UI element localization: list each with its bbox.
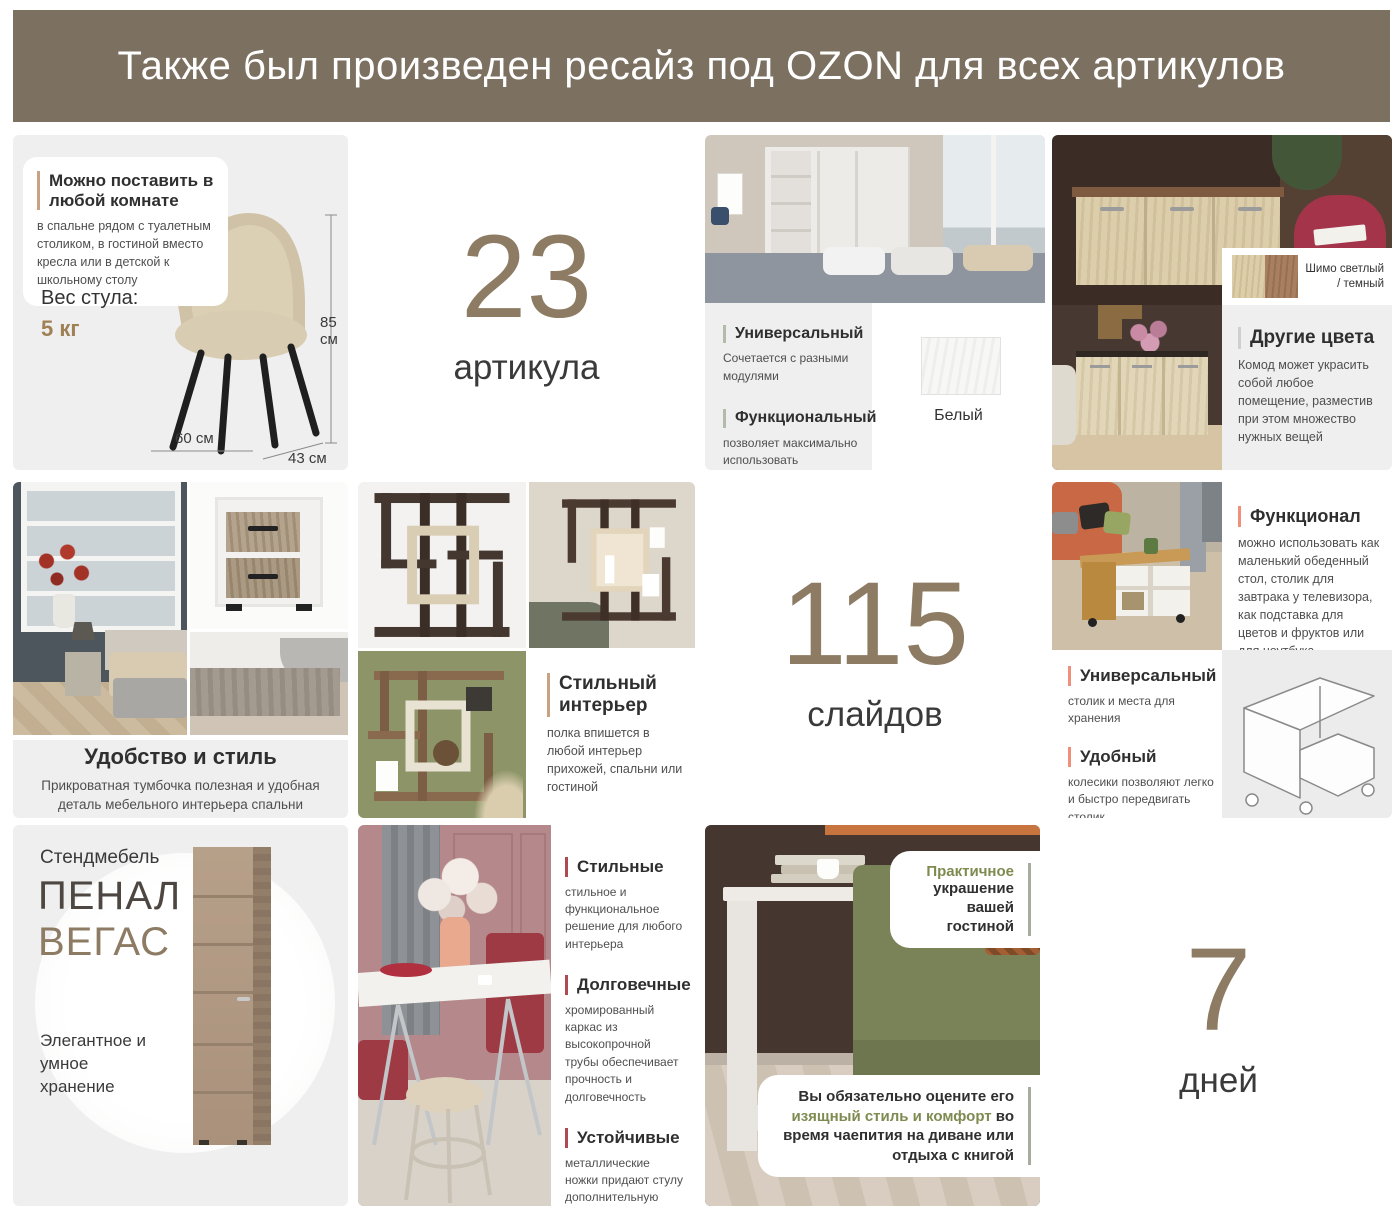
plant-pot: [1144, 538, 1158, 554]
stat-articles-label: артикула: [453, 348, 599, 388]
accent-bar: [1238, 506, 1241, 527]
dried-plant: [468, 761, 523, 818]
height-unit-label: см: [320, 331, 338, 348]
stat-articles: 23 артикула: [348, 135, 705, 470]
pillow: [823, 247, 885, 275]
white-swatch-label: Белый: [872, 407, 1045, 425]
shelf-board: [662, 557, 670, 620]
caster-wheel: [1088, 618, 1097, 627]
stat-days-label: дней: [1179, 1061, 1258, 1101]
wardrobe-card: Универсальный Сочетается с разными модул…: [705, 135, 1045, 470]
accent-bar: [565, 975, 568, 995]
coffee-cup: [478, 975, 492, 985]
feature-head: Стильный интерьер: [547, 673, 683, 717]
decor-vase: [605, 555, 614, 583]
cabinet-foot: [237, 1140, 247, 1145]
decor-books: [642, 574, 659, 596]
nightstand-caption: Удобство и стиль Прикроватная тумбочка п…: [13, 740, 348, 818]
feature-title: Другие цвета: [1250, 327, 1374, 349]
cup: [817, 859, 839, 879]
feature-title: Универсальный: [735, 325, 863, 343]
shelf-board: [562, 612, 676, 620]
coffee-table-drawing-panel: [1222, 650, 1392, 818]
shelf-board: [381, 493, 391, 568]
feature-head: Можно поставить в любой комнате: [37, 171, 214, 210]
stool-leg: [448, 1109, 450, 1203]
sideboard-handle: [1132, 365, 1152, 368]
table-leg: [508, 999, 540, 1135]
dark-shelf: [358, 482, 526, 648]
nightstand-product-photo: [190, 482, 348, 629]
feature: Стильный интерьер полка впишется в любой…: [547, 673, 683, 796]
cabinet-handle: [237, 997, 250, 1001]
accent-bar: [1068, 747, 1071, 767]
cabinet-front: [193, 847, 253, 1145]
feature-body: металлические ножки придают стулу дополн…: [565, 1155, 685, 1206]
feature: Универсальный столик и места для хранени…: [1068, 666, 1220, 727]
chair-feature-panel: Можно поставить в любой комнате в спальн…: [23, 157, 228, 306]
header-banner: Также был произведен ресайз под OZON для…: [13, 10, 1390, 122]
product-title: ПЕНАЛ ВЕГАС: [38, 873, 181, 965]
feature-head: Устойчивые: [565, 1128, 685, 1148]
shelf-board: [380, 671, 389, 739]
shelf-board: [374, 493, 509, 503]
dresser-card: Шимо светлый / темный Другие цвета Комод…: [1052, 135, 1392, 470]
feature-title: Можно поставить в любой комнате: [49, 171, 214, 210]
decor-books: [376, 761, 398, 791]
feature-head: Другие цвета: [1238, 327, 1380, 349]
cabinet-seam: [193, 991, 253, 994]
coffee-table-photo: [1052, 482, 1222, 650]
feature-body: хромированный каркас из высокопрочной тр…: [565, 1002, 685, 1106]
feature-body: в спальне рядом с туалетным столиком, в …: [37, 217, 214, 290]
shelf-card: Стильный интерьер полка впишется в любой…: [358, 482, 695, 818]
drawing-wheel: [1300, 802, 1312, 814]
sideboard-close: [1076, 357, 1208, 435]
page-title: Также был произведен ресайз под OZON для…: [118, 44, 1286, 89]
shelf-board: [568, 499, 576, 562]
wall-block: [1202, 482, 1222, 542]
feature: Функционал можно использовать как малень…: [1238, 506, 1384, 661]
white-chair: [1052, 365, 1076, 445]
penal-card: Стендмебель ПЕНАЛ ВЕГАС Элегантное и умн…: [13, 825, 348, 1206]
feature: Функциональный позволяет максимально исп…: [723, 409, 858, 470]
table-divider: [1148, 566, 1153, 616]
feature-title: Функциональный: [735, 409, 876, 427]
drawing-wheel: [1246, 794, 1258, 806]
bed-blanket: [113, 678, 187, 718]
dark-shelf-styled: [549, 490, 689, 630]
coffee-table-feature-1: Функционал можно использовать как малень…: [1238, 506, 1384, 661]
sideboard-seam: [1162, 357, 1165, 435]
feature-title: Удобный: [1080, 747, 1156, 767]
feature-body: Комод может украсить собой любое помещен…: [1238, 356, 1380, 447]
pillow: [891, 247, 953, 275]
callout-accent-bar: [1028, 863, 1031, 936]
basket: [1122, 592, 1144, 610]
feature-head: Функциональный: [723, 409, 858, 427]
feature: Долговечные хромированный каркас из высо…: [565, 975, 685, 1106]
feature-title: Устойчивые: [577, 1128, 680, 1148]
green-pillow: [1103, 511, 1131, 536]
feature-title: Стильный интерьер: [559, 673, 683, 717]
nightstand-in-room: [65, 652, 101, 696]
stat-slides-value: 115: [781, 565, 969, 683]
sofa-card: Практичное украшение вашей гостиной Вы о…: [705, 825, 1040, 1206]
callout-top: Практичное украшение вашей гостиной: [890, 851, 1040, 948]
feature-title: Универсальный: [1080, 666, 1216, 686]
feature: Устойчивые металлические ножки придают с…: [565, 1128, 685, 1206]
feature-body: столик и места для хранения: [1068, 693, 1220, 728]
table-side: [1082, 562, 1116, 620]
shelf-board: [493, 562, 503, 637]
lamp-shade: [71, 622, 95, 640]
sideboard-handle: [1170, 207, 1194, 211]
feature-body: можно использовать как маленький обеденн…: [1238, 534, 1384, 661]
bed-corner-photo: [190, 632, 348, 735]
callout-top-text: украшение вашей гостиной: [933, 880, 1014, 935]
dining-photo: [358, 825, 551, 1206]
nightstand-foot: [226, 604, 242, 611]
decor-clock: [433, 740, 459, 766]
accent-bar: [1238, 327, 1241, 349]
cabinet-foot: [199, 1140, 209, 1145]
vase: [53, 594, 75, 628]
shelf-board: [456, 493, 466, 637]
cabinet-illustration: [193, 847, 271, 1145]
accent-bar: [565, 1128, 568, 1148]
red-plate: [380, 963, 432, 977]
shelf-product-photo: [358, 482, 526, 648]
sideboard-seam: [1212, 197, 1215, 285]
dining-card: Стильные стильное и функциональное решен…: [358, 825, 695, 1206]
chair-leg: [291, 347, 316, 433]
shimo-swatch-panel: Шимо светлый / темный: [1222, 248, 1392, 305]
sideboard-handle: [1090, 365, 1110, 368]
feature-title: Стильные: [577, 857, 664, 877]
gray-pillow: [1052, 512, 1078, 534]
drawer-handle: [248, 574, 278, 579]
shelf-interior-photo: [529, 482, 695, 648]
feature-title: Долговечные: [577, 975, 691, 995]
sideboard-seam: [1144, 197, 1147, 285]
product-title-line2: ВЕГАС: [38, 919, 181, 965]
decor-books: [466, 687, 492, 711]
caster-wheel: [1176, 614, 1185, 623]
sideboard-seam: [1118, 357, 1121, 435]
sideboard-handle: [1178, 365, 1198, 368]
cabinet-seam: [193, 1091, 253, 1094]
product-title-line1: ПЕНАЛ: [38, 873, 181, 919]
shimo-light-half: [1232, 255, 1265, 298]
feature-head: Универсальный: [1068, 666, 1220, 686]
drawer-handle: [248, 526, 278, 531]
bedroom-wardrobe-photo: [705, 135, 1045, 303]
orange-wall-strip: [825, 825, 1040, 835]
feature: Другие цвета Комод может украсить собой …: [1238, 327, 1380, 446]
feature-body: Сочетается с разными модулями: [723, 350, 858, 385]
shelf-board: [374, 671, 504, 680]
callout-bottom-part1: Вы обязательно оцените его: [798, 1088, 1014, 1105]
coffee-table-feature-2: Универсальный столик и места для хранени…: [1068, 666, 1220, 818]
weight-block: Вес стула: 5 кг: [41, 287, 138, 342]
feature-body: полка впишется в любой интерьер прихожей…: [547, 724, 683, 797]
feature-head: Удобный: [1068, 747, 1220, 767]
coffee-table-line-drawing: [1222, 650, 1392, 818]
shelf-green-wall-photo: [358, 651, 526, 818]
nightstand-card: Удобство и стиль Прикроватная тумбочка п…: [13, 482, 348, 818]
width-label: 60 см: [175, 430, 214, 447]
callout-top-highlight: Практичное: [904, 863, 1014, 880]
feature-head: Долговечные: [565, 975, 685, 995]
stool-legs: [398, 1105, 498, 1205]
cabinet-side: [253, 847, 271, 1145]
feature: Универсальный Сочетается с разными модул…: [723, 325, 858, 385]
red-plant: [29, 540, 99, 600]
weight-label: Вес стула:: [41, 287, 138, 310]
feature-head: Стильные: [565, 857, 685, 877]
feature: Можно поставить в любой комнате в спальн…: [37, 171, 214, 290]
stat-days: 7 дней: [1045, 825, 1392, 1206]
accent-bar: [1068, 666, 1071, 686]
callout-bottom-highlight: изящный стиль и комфорт: [792, 1108, 992, 1125]
flowers: [1122, 319, 1178, 353]
shelf-board: [562, 499, 676, 507]
drawer-top: [226, 512, 300, 552]
height-label: 85: [320, 314, 337, 331]
nightstand-body: Прикроватная тумбочка полезная и удобная…: [31, 777, 331, 813]
feature-body: стильное и функциональное решение для лю…: [565, 884, 685, 954]
cabinet-seam: [193, 1043, 253, 1046]
feature: Удобный колесики позволяют легко и быстр…: [1068, 747, 1220, 818]
bed-base: [190, 668, 340, 716]
shelf-board: [374, 627, 509, 637]
white-color-swatch: [921, 337, 1001, 395]
table-leg: [374, 1005, 398, 1145]
table-shelf-line: [1116, 586, 1190, 590]
product-tagline: Элегантное и умное хранение: [40, 1030, 160, 1099]
nightstand-foot: [296, 604, 312, 611]
feature-body: колесики позволяют легко и быстро передв…: [1068, 774, 1220, 818]
shimo-swatch-label: Шимо светлый / темный: [1298, 262, 1392, 292]
accent-bar: [37, 171, 40, 210]
stat-articles-value: 23: [461, 218, 592, 336]
chair-leg: [263, 357, 275, 445]
chair-seat: [175, 310, 307, 360]
stat-slides-label: слайдов: [807, 695, 942, 735]
shimo-dark-half: [1265, 255, 1298, 298]
accent-bar: [723, 325, 726, 343]
weight-value: 5 кг: [41, 316, 138, 342]
shelf-accent-box: [594, 531, 646, 589]
wall-hex-decor: [711, 207, 729, 225]
page: Также был произведен ресайз под OZON для…: [0, 0, 1400, 1214]
feature-title: Функционал: [1250, 506, 1361, 527]
dresser-feature: Другие цвета Комод может украсить собой …: [1222, 305, 1392, 470]
stat-slides: 115 слайдов: [705, 482, 1045, 818]
dresser-photo-secondary: [1052, 305, 1222, 470]
chair-leg: [221, 357, 228, 451]
cabinet-seam: [193, 895, 253, 898]
cabinet-seam: [193, 943, 253, 946]
coffee-table-card: Функционал можно использовать как малень…: [1052, 482, 1392, 818]
callout-bottom: Вы обязательно оцените его изящный стиль…: [758, 1075, 1040, 1177]
depth-label: 43 см: [288, 450, 327, 465]
feature-head: Универсальный: [723, 325, 858, 343]
chair-card: 85 см 60 см 43 см Можно поставить в любо…: [13, 135, 348, 470]
sideboard-top: [1072, 187, 1284, 197]
accent-bar: [565, 857, 568, 877]
feature-head: Функционал: [1238, 506, 1384, 527]
stat-days-value: 7: [1186, 931, 1252, 1049]
drawing-wheel: [1362, 784, 1374, 796]
bedroom-photo: [13, 482, 187, 735]
feature-body: позволяет максимально использовать прост…: [723, 435, 858, 470]
feature: Стильные стильное и функциональное решен…: [565, 857, 685, 953]
dining-features: Стильные стильное и функциональное решен…: [551, 825, 695, 1206]
nightstand-title: Удобство и стиль: [84, 744, 276, 770]
shimo-wood-swatch: [1232, 255, 1298, 298]
decor-frame: [650, 527, 665, 548]
shelf-feature-panel: Стильный интерьер полка впишется в любой…: [529, 651, 695, 818]
callout-accent-bar: [1028, 1087, 1031, 1165]
pillow: [963, 245, 1033, 271]
sideboard-handle: [1100, 207, 1124, 211]
accent-bar: [723, 409, 726, 427]
sideboard-handle: [1238, 207, 1262, 211]
wardrobe-features: Универсальный Сочетается с разными модул…: [705, 303, 872, 470]
brand-label: Стендмебель: [40, 847, 159, 869]
accent-bar: [547, 673, 550, 717]
